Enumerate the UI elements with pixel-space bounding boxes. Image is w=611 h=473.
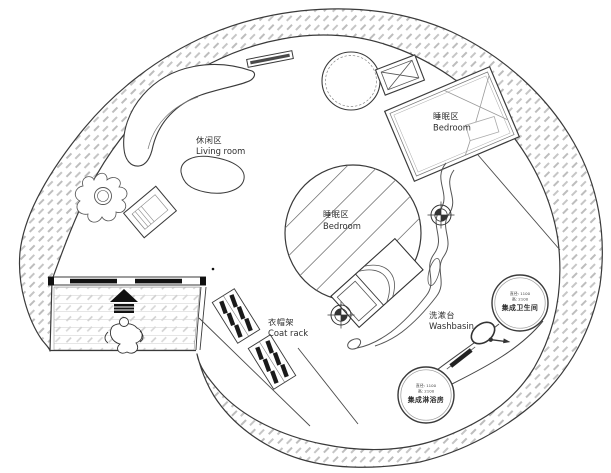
center-bedroom-label-zh: 睡眠区 [323, 209, 349, 219]
bathroom-pod-label: 集成卫生间 [501, 303, 538, 312]
coat-rack-unit [212, 289, 259, 343]
center-bedroom-label-en: Bedroom [323, 221, 361, 231]
divider-washbasin-zone [298, 348, 358, 424]
floor-plan-drawing: 直径: 1100 高: 2100 集成卫生间 直径: 1100 高: 2100 … [0, 0, 611, 473]
plant [75, 173, 127, 222]
coat-rack-label-en: Coat rack [268, 328, 308, 338]
washbasin-label-en: Washbasin [429, 321, 474, 331]
corridor-door-wall [48, 277, 206, 286]
wall-shelf [247, 51, 294, 68]
reference-dot [212, 268, 215, 271]
living-room-label-zh: 休闲区 [196, 135, 222, 145]
bathroom-pod: 直径: 1100 高: 2100 集成卫生间 [492, 275, 548, 331]
counter-handle [445, 345, 476, 371]
living-room-label-en: Living room [196, 146, 245, 156]
survey-point-icon [428, 202, 455, 229]
coat-rack-unit [248, 335, 295, 389]
floor-plan: 直径: 1100 高: 2100 集成卫生间 直径: 1100 高: 2100 … [0, 0, 611, 473]
shower-pod-height: 高: 2100 [418, 389, 435, 394]
lounge-chair [124, 186, 177, 238]
shower-pod: 直径: 1100 高: 2100 集成淋浴房 [398, 367, 454, 423]
shower-pod-label: 集成淋浴房 [407, 395, 444, 404]
door-leaf [135, 279, 182, 284]
washbasin-label-zh: 洗漱台 [429, 310, 455, 320]
coat-rack-label-zh: 衣帽架 [268, 317, 294, 327]
door-leaf [70, 279, 117, 284]
bathroom-pod-height: 高: 2100 [512, 297, 529, 302]
round-table [322, 52, 380, 110]
upper-bedroom-label-zh: 睡眠区 [433, 111, 459, 121]
upper-bedroom-label-en: Bedroom [433, 123, 471, 133]
coffee-table [181, 156, 244, 193]
shower-pod-diameter: 直径: 1100 [416, 383, 437, 388]
bathroom-pod-diameter: 直径: 1100 [510, 291, 531, 296]
entrance-corridor [48, 277, 206, 354]
window-box [376, 55, 425, 95]
